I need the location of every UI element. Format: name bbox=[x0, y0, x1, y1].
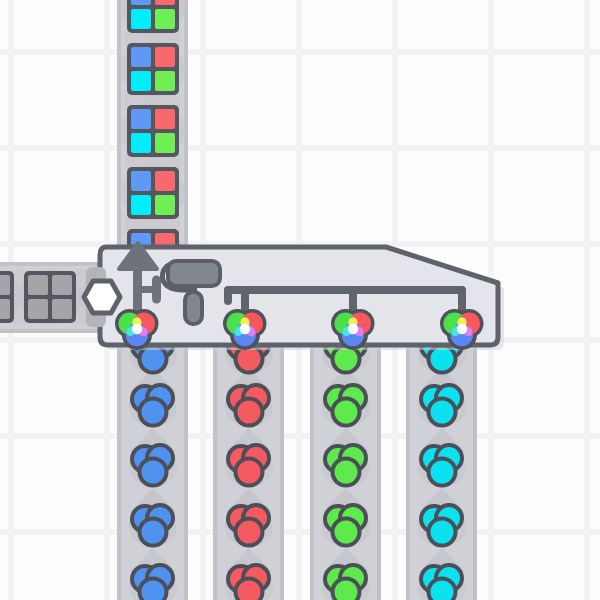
game-viewport bbox=[0, 0, 600, 600]
quad-painter-machine bbox=[0, 0, 600, 600]
shape-input-hexagon-icon bbox=[84, 281, 120, 313]
